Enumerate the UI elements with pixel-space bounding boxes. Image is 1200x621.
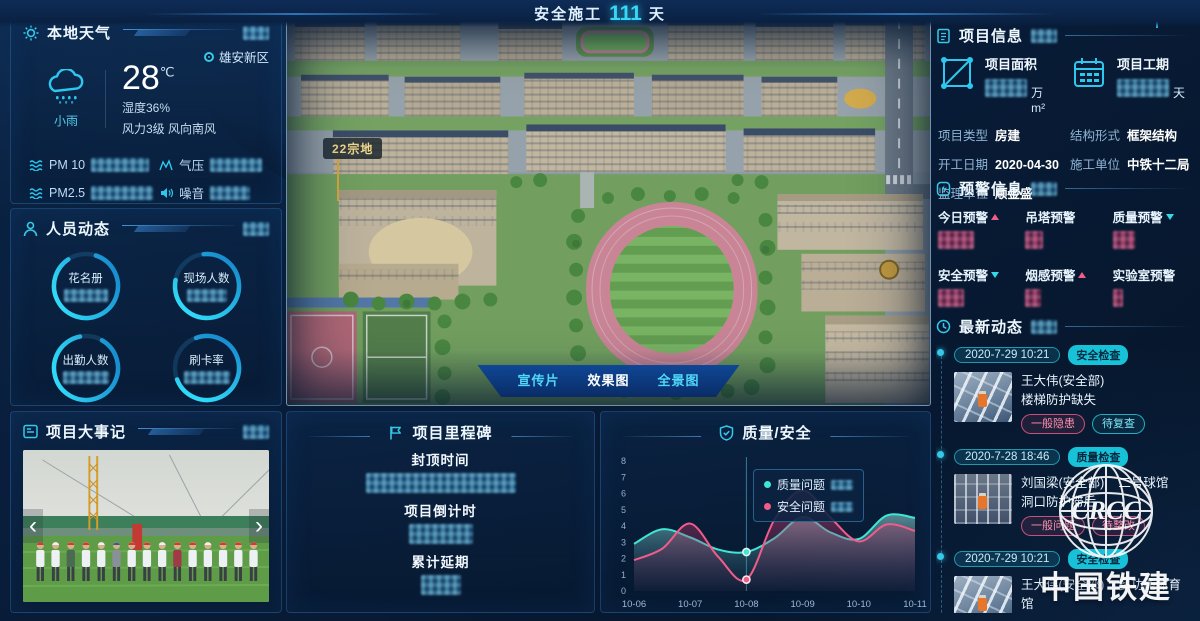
trend-up-icon [991,214,999,220]
milestone-topping-time: 封顶时间 [366,449,516,493]
update-entry[interactable]: 2020-7-29 10:21 安全检查 王大伟(安全部) 楼梯防护缺失 一般隐… [954,345,1192,434]
entry-time: 2020-7-29 10:21 [954,347,1060,363]
quality-warnings-redacted [1113,231,1135,249]
personnel-panel-title: 人员动态 [46,218,110,239]
calendar-icon [1070,54,1108,92]
header-decoration [1031,320,1057,334]
location-badge: 雄安新区 [204,47,269,66]
parcel-label: 22宗地 [323,138,382,159]
group-photo-illustration [23,450,269,602]
milestone-delay: 累计延期 [412,551,470,595]
svg-text:3: 3 [621,537,626,547]
entry-category-badge: 安全检查 [1068,549,1128,569]
local-weather-panel: 本地天气 雄安新区 小雨 28℃ 湿度36% 风力3级 风向南风 PM 10 气… [10,12,282,204]
entry-person: 王大伟(安全部) [1021,374,1104,388]
latest-updates-section: 最新动态 2020-7-29 10:21 安全检查 王大伟(安全部) 楼梯防护缺… [936,316,1192,613]
entry-photo[interactable] [954,576,1012,613]
entry-category-badge: 质量检查 [1068,447,1128,467]
svg-text:10-10: 10-10 [847,599,871,610]
tab-promo-video[interactable]: 宣传片 [517,370,559,389]
entry-photo[interactable] [954,474,1012,524]
shield-check-icon [719,425,734,441]
warning-quality: 质量预警 [1113,207,1192,249]
project-duration-tile: 项目工期 天 [1070,54,1188,115]
quality-value-redacted [831,480,853,490]
field-contractor: 施工单位中铁十二局 [1070,154,1192,173]
entry-time: 2020-7-29 10:21 [954,551,1060,567]
gauge-onsite: 现场人数 [170,249,244,323]
svg-text:0: 0 [621,586,626,596]
project-info-title: 项目信息 [959,25,1023,46]
update-entry[interactable]: 2020-7-29 10:21 安全检查 王大伟(安全部)多功能体育馆 楼梯防护… [954,549,1192,613]
milestone-panel: 项目里程碑 封顶时间 项目倒计时 累计延期 [286,411,595,613]
smoke-warnings-redacted [1025,289,1041,307]
roster-value-redacted [64,289,108,302]
scene-tab-bar: 宣传片 效果图 全景图 [477,365,739,397]
svg-text:10-08: 10-08 [734,599,758,610]
safety-legend-dot [764,503,771,510]
countdown-redacted [409,524,473,544]
site-3d-view[interactable]: 22宗地 宣传片 效果图 全景图 [286,12,931,406]
entry-issue: 楼梯防护缺失 [1021,391,1145,410]
warnings-title: 预警信息 [959,178,1023,199]
pressure-gauge-icon [159,159,173,171]
warning-lab: 实验室预警 [1113,265,1192,307]
entry-time: 2020-7-28 18:46 [954,449,1060,465]
milestone-panel-title: 项目里程碑 [412,422,492,443]
pm25-value-redacted [91,186,153,200]
status-tag: 待复查 [1092,414,1145,435]
latest-updates-title: 最新动态 [959,316,1023,337]
svg-text:10-07: 10-07 [678,599,702,610]
project-info-section: 项目信息 项目面积 万m² 项目工期 天 项目类型房建 结构形式框架结构 开工日 [936,25,1192,202]
entry-location: 二号球馆 [1118,476,1168,490]
safety-warnings-redacted [938,289,964,307]
update-entry[interactable]: 2020-7-28 18:46 质量检查 刘国梁(安全部)二号球馆 洞口防护滞后… [954,447,1192,536]
trend-down-icon [1166,214,1174,220]
humidity-text: 湿度36% [122,99,216,116]
tab-rendering[interactable]: 效果图 [587,370,629,389]
entry-category-badge: 安全检查 [1068,345,1128,365]
entry-person: 刘国梁(安全部) [1021,476,1104,490]
gauge-attendance: 出勤人数 [49,331,123,405]
area-unit: 万m² [1031,84,1056,115]
safe-days-suffix: 天 [649,3,666,24]
clock-icon [936,319,951,334]
warning-today: 今日预警 [938,207,1017,249]
location-label: 雄安新区 [219,47,269,66]
tab-panorama[interactable]: 全景图 [658,370,700,389]
warning-smoke: 烟感预警 [1025,265,1104,307]
location-icon [204,52,214,62]
status-tag: 待整改 [1092,516,1145,537]
today-warnings-redacted [938,231,974,249]
field-start-date: 开工日期2020-04-30 [938,154,1056,173]
project-events-panel: 项目大事记 ‹ › [10,411,282,613]
warning-safety: 安全预警 [938,265,1017,307]
gauge-roster: 花名册 [49,249,123,323]
entry-person: 王大伟(安全部) [1021,578,1104,592]
site-rendering [287,13,930,405]
weather-condition: 小雨 [27,112,105,129]
duration-unit: 天 [1173,84,1185,101]
onsite-value-redacted [187,289,227,302]
safe-days-prefix: 安全施工 [534,3,602,24]
gauge-swipe-rate: 刷卡率 [170,331,244,405]
temperature-unit: ℃ [160,65,175,80]
carousel-next-button[interactable]: › [249,509,269,543]
area-icon [938,54,976,92]
svg-text:4: 4 [621,521,626,531]
safe-days-count: 111 [609,2,642,26]
duration-value-redacted [1117,79,1169,97]
safety-value-redacted [831,502,853,512]
carousel-prev-button[interactable]: ‹ [23,509,43,543]
header-decoration [243,26,269,40]
header-decoration [1031,182,1057,196]
hazard-tag: 一般问题 [1021,516,1085,537]
svg-text:10-09: 10-09 [790,599,814,610]
attendance-value-redacted [63,371,109,384]
temperature-value: 28℃ [122,61,216,95]
svg-text:7: 7 [621,472,626,482]
field-project-type: 项目类型房建 [938,125,1056,144]
top-header-bar: 安全施工 111 天 [0,0,1200,27]
entry-photo[interactable] [954,372,1012,422]
quality-safety-panel: 质量/安全 01234567810-0610-0710-0810-0910-10… [600,411,931,613]
trend-down-icon [991,272,999,278]
pm10-value-redacted [91,158,149,172]
header-decoration [1031,29,1057,43]
flag-icon [388,425,404,441]
quality-safety-title: 质量/安全 [742,422,811,443]
header-decoration [243,222,269,236]
project-area-tile: 项目面积 万m² [938,54,1056,115]
topping-time-redacted [366,473,516,493]
quality-legend-label: 质量问题 [777,476,825,493]
area-value-redacted [985,79,1027,97]
warnings-section: 预警信息 今日预警 吊塔预警 质量预警 安全预警 烟感预警 实验室预警 [936,178,1192,307]
chart-tooltip: 质量问题 安全问题 [753,469,864,522]
trend-up-icon [1078,272,1086,278]
document-icon [936,28,951,44]
crane-warnings-redacted [1025,231,1043,249]
svg-text:1: 1 [621,570,626,580]
swipe-rate-value-redacted [184,371,230,384]
svg-text:5: 5 [621,505,626,515]
rain-cloud-icon [44,69,88,105]
safety-legend-label: 安全问题 [777,498,825,515]
svg-text:8: 8 [621,456,626,466]
hazard-tag: 一般隐患 [1021,414,1085,435]
entry-issue: 洞口防护滞后 [1021,493,1168,512]
field-structure: 结构形式框架结构 [1070,125,1192,144]
person-icon [23,221,38,237]
metric-pm25: PM2.5 [29,183,153,202]
milestone-countdown: 项目倒计时 [404,500,477,544]
pressure-value-redacted [210,158,262,172]
svg-text:2: 2 [621,554,626,564]
svg-text:6: 6 [621,489,626,499]
quality-legend-dot [764,481,771,488]
svg-text:10-06: 10-06 [622,599,646,610]
lab-warnings-redacted [1113,289,1123,307]
alert-icon [936,181,951,197]
events-panel-title: 项目大事记 [46,421,126,442]
metric-noise: 噪音 [159,183,267,202]
delay-redacted [421,575,461,595]
haze-icon [29,187,43,199]
events-photo: ‹ › [23,450,269,602]
header-decoration [243,425,269,439]
noise-value-redacted [210,186,250,200]
photo-calendar-icon [23,424,38,439]
haze-icon [29,159,43,171]
svg-text:10-11: 10-11 [903,599,927,610]
speaker-icon [159,187,173,199]
wind-text: 风力3级 风向南风 [122,120,216,137]
warning-crane: 吊塔预警 [1025,207,1104,249]
metric-pressure: 气压 [159,155,267,174]
metric-pm10: PM 10 [29,155,153,174]
personnel-panel: 人员动态 花名册 现场人数 出勤人数 刷卡率 [10,208,282,406]
